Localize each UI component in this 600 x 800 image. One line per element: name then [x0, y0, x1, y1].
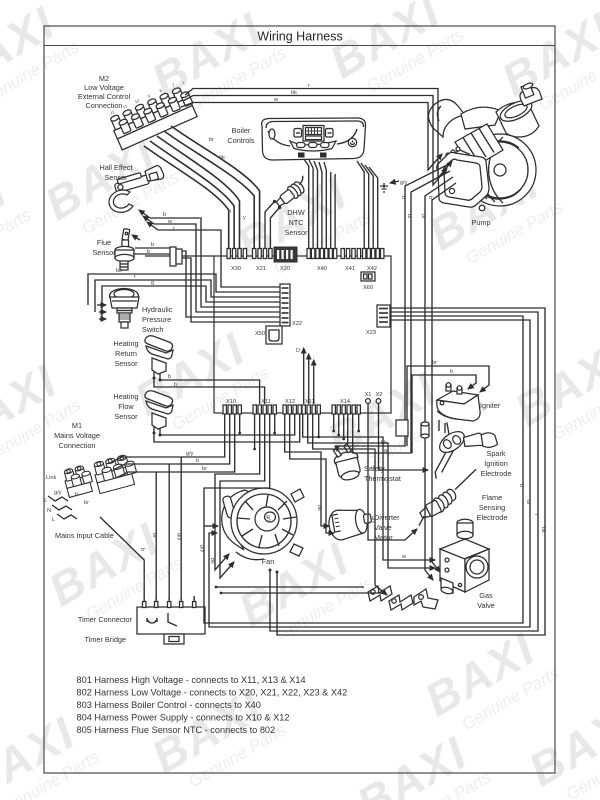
svg-text:bk: bk: [219, 155, 225, 161]
svg-text:b: b: [75, 492, 78, 498]
svg-text:Pump: Pump: [471, 218, 490, 227]
svg-text:N: N: [47, 508, 51, 514]
svg-text:Electrode: Electrode: [477, 513, 508, 522]
svg-text:802 Harness Low Voltage - conn: 802 Harness Low Voltage - connects to X2…: [77, 688, 348, 698]
svg-text:L: L: [52, 517, 55, 523]
svg-text:g: g: [151, 280, 154, 286]
svg-text:g/y: g/y: [199, 545, 205, 553]
svg-text:External Control: External Control: [78, 92, 131, 101]
svg-text:X20: X20: [280, 266, 290, 272]
svg-text:br: br: [406, 214, 412, 219]
svg-text:Valve: Valve: [477, 601, 495, 610]
svg-text:Return: Return: [115, 349, 137, 358]
svg-text:b: b: [174, 382, 177, 388]
svg-text:b: b: [518, 484, 524, 487]
svg-text:Heating: Heating: [113, 392, 138, 401]
svg-text:br: br: [202, 466, 207, 472]
svg-text:b: b: [168, 374, 171, 380]
svg-text:b: b: [151, 242, 154, 248]
svg-text:801 Harness High Voltage - con: 801 Harness High Voltage - connects to X…: [77, 675, 306, 685]
svg-text:br: br: [84, 500, 89, 506]
svg-text:X21: X21: [256, 266, 266, 272]
svg-text:Gas: Gas: [479, 591, 493, 600]
svg-text:Diverter: Diverter: [374, 513, 400, 522]
svg-text:Electrode: Electrode: [481, 469, 512, 478]
svg-text:Wiring Harness: Wiring Harness: [257, 30, 342, 44]
svg-text:804 Harness Power Supply - con: 804 Harness Power Supply - connects to X…: [77, 713, 290, 723]
svg-text:Sensor: Sensor: [284, 228, 308, 237]
svg-text:br: br: [209, 137, 214, 143]
svg-text:X12: X12: [285, 399, 295, 405]
svg-text:b: b: [196, 458, 199, 464]
svg-text:Ignition: Ignition: [484, 459, 508, 468]
svg-text:X1: X1: [365, 392, 372, 398]
svg-text:bk: bk: [116, 268, 122, 274]
svg-text:br: br: [420, 214, 426, 219]
svg-text:Flame: Flame: [482, 493, 502, 502]
svg-text:Spark: Spark: [486, 449, 505, 458]
svg-text:Connection: Connection: [86, 101, 123, 110]
svg-text:br: br: [151, 533, 157, 538]
svg-text:Flue: Flue: [97, 238, 111, 247]
svg-text:Sensor: Sensor: [104, 173, 128, 182]
svg-text:b: b: [400, 196, 406, 199]
svg-text:805 Harness Flue Sensor NTC -: 805 Harness Flue Sensor NTC - connects t…: [77, 725, 276, 735]
svg-text:M2: M2: [99, 74, 109, 83]
svg-text:Controls: Controls: [227, 136, 255, 145]
svg-text:g/y: g/y: [186, 451, 194, 457]
svg-text:Fan: Fan: [262, 557, 275, 566]
svg-text:Timer Connector: Timer Connector: [78, 615, 133, 624]
svg-text:X50: X50: [255, 331, 265, 337]
svg-text:803 Harness Boiler Control - c: 803 Harness Boiler Control - connects to…: [77, 700, 261, 710]
svg-text:p: p: [228, 209, 231, 215]
svg-text:b: b: [139, 548, 145, 551]
svg-text:Hydraulic: Hydraulic: [142, 305, 173, 314]
svg-text:X22: X22: [292, 321, 302, 327]
svg-text:bk: bk: [316, 505, 322, 511]
svg-text:X40: X40: [317, 266, 327, 272]
svg-text:X23: X23: [366, 330, 376, 336]
svg-text:X41: X41: [345, 266, 355, 272]
svg-text:Heating: Heating: [113, 339, 138, 348]
svg-text:y: y: [243, 215, 246, 221]
svg-text:Flow: Flow: [118, 402, 134, 411]
svg-text:X60: X60: [363, 285, 373, 291]
svg-text:Sensor: Sensor: [92, 248, 116, 257]
svg-text:r: r: [134, 274, 136, 280]
svg-text:Mains Input Cable: Mains Input Cable: [55, 531, 114, 540]
svg-text:X42: X42: [367, 266, 377, 272]
svg-text:Hall Effect: Hall Effect: [99, 163, 132, 172]
svg-text:Low Voltage: Low Voltage: [84, 83, 124, 92]
svg-text:X11: X11: [261, 399, 271, 405]
svg-text:b: b: [163, 212, 166, 218]
svg-text:Igniter: Igniter: [480, 401, 501, 410]
svg-text:Sensor: Sensor: [114, 359, 138, 368]
svg-text:br: br: [432, 360, 437, 366]
svg-text:Pressure: Pressure: [142, 315, 171, 324]
svg-text:Timer Bridge: Timer Bridge: [85, 635, 127, 644]
svg-text:Mains Voltage: Mains Voltage: [54, 431, 100, 440]
svg-text:br: br: [525, 500, 531, 505]
svg-text:Sensing: Sensing: [479, 503, 505, 512]
svg-text:b: b: [450, 369, 453, 375]
svg-text:X10: X10: [226, 399, 236, 405]
svg-text:b: b: [427, 196, 433, 199]
svg-text:r: r: [173, 226, 175, 232]
svg-text:Boiler: Boiler: [232, 126, 251, 135]
svg-text:g: g: [384, 448, 387, 454]
svg-text:X14: X14: [340, 399, 350, 405]
svg-text:g/y: g/y: [370, 516, 376, 524]
svg-text:E: E: [43, 498, 47, 504]
svg-text:D: D: [296, 348, 300, 354]
svg-text:NTC: NTC: [289, 218, 304, 227]
svg-text:bk: bk: [291, 90, 297, 96]
svg-text:M1: M1: [72, 421, 82, 430]
svg-text:r: r: [308, 83, 310, 89]
svg-text:X30: X30: [231, 266, 241, 272]
svg-text:r: r: [533, 514, 539, 516]
svg-text:DHW: DHW: [287, 208, 305, 217]
svg-text:Link: Link: [46, 475, 56, 481]
svg-text:g/y: g/y: [54, 490, 62, 496]
svg-text:X2: X2: [376, 392, 383, 398]
svg-text:g/y: g/y: [265, 515, 271, 523]
svg-text:g/y: g/y: [176, 533, 182, 541]
svg-text:bk: bk: [540, 527, 546, 533]
svg-text:Sensor: Sensor: [114, 412, 138, 421]
svg-text:Connection: Connection: [59, 441, 96, 450]
svg-text:b: b: [147, 249, 150, 255]
svg-text:Switch: Switch: [142, 325, 164, 334]
svg-text:bk: bk: [209, 558, 215, 564]
